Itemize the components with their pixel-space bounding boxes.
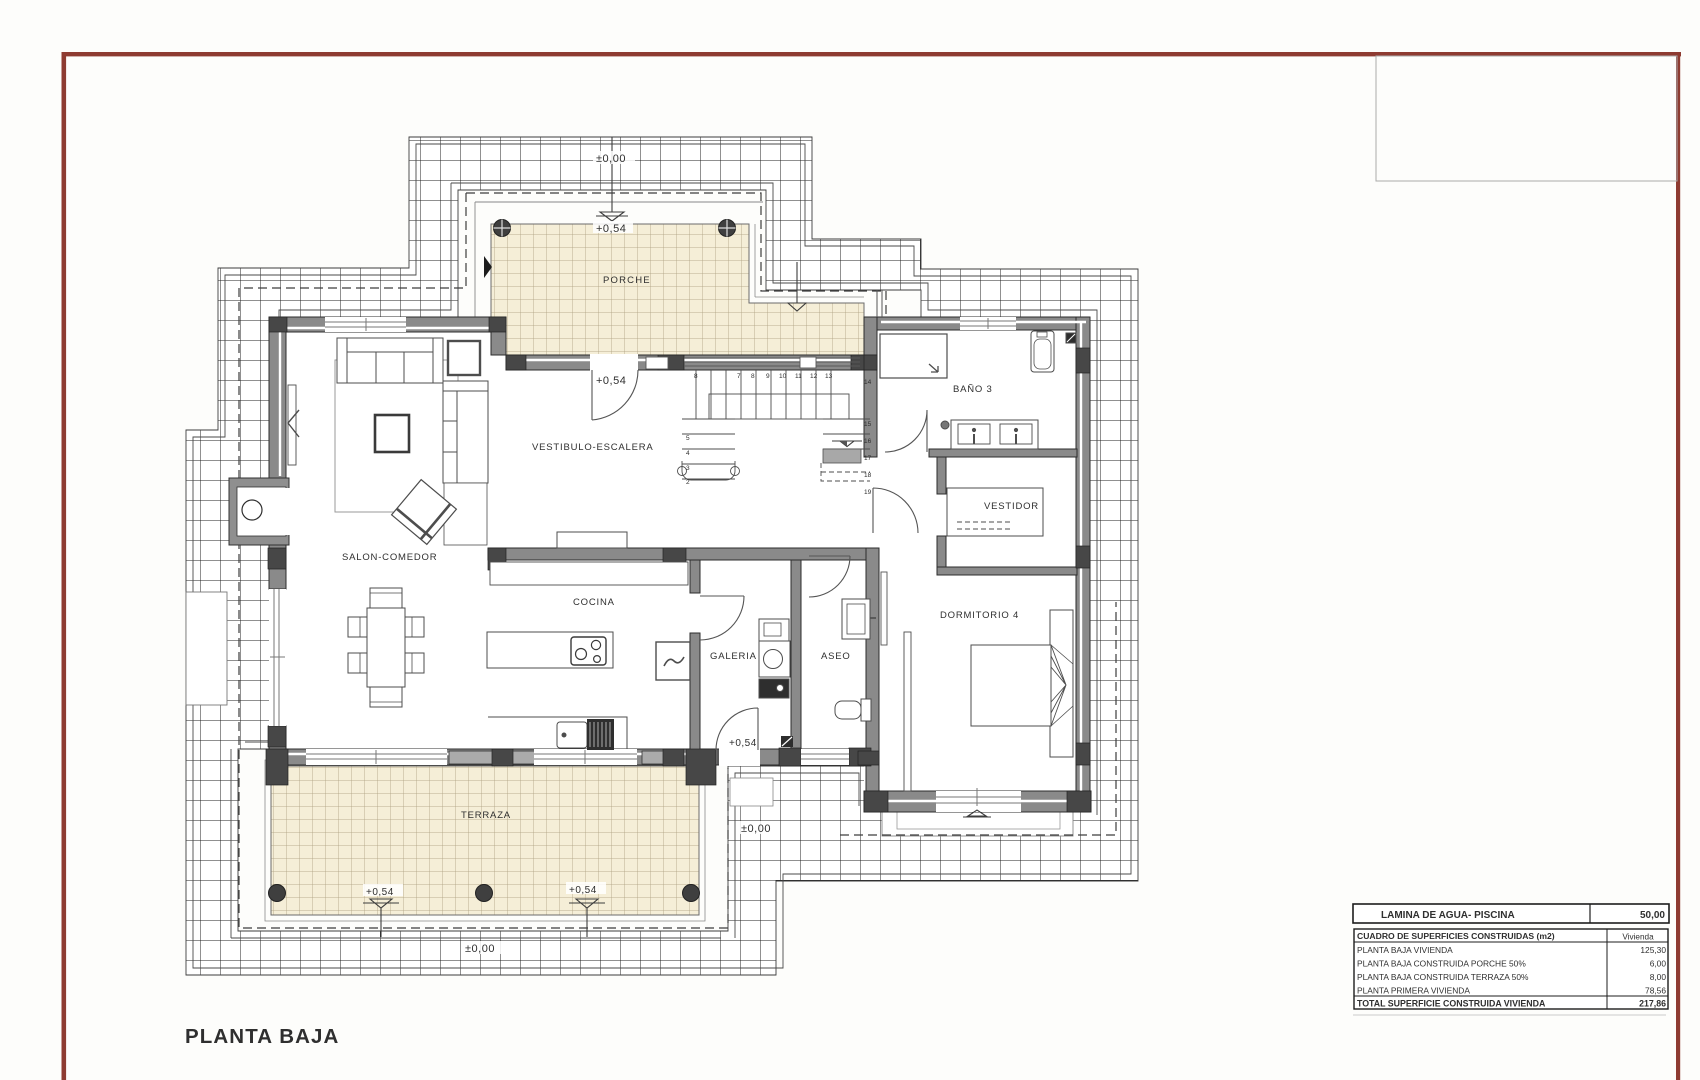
svg-text:78,56: 78,56 — [1645, 986, 1666, 996]
svg-text:19: 19 — [864, 489, 872, 496]
svg-text:6,00: 6,00 — [1650, 959, 1667, 969]
svg-text:+0,54: +0,54 — [569, 885, 597, 896]
svg-text:9: 9 — [766, 373, 770, 380]
svg-text:+0,54: +0,54 — [729, 738, 757, 749]
svg-text:LAMINA DE AGUA- PISCINA: LAMINA DE AGUA- PISCINA — [1381, 910, 1515, 921]
svg-text:13: 13 — [825, 373, 833, 380]
svg-text:7: 7 — [737, 373, 741, 380]
svg-text:DORMITORIO 4: DORMITORIO 4 — [940, 610, 1019, 621]
svg-text:Vivienda: Vivienda — [1622, 933, 1654, 942]
svg-text:15: 15 — [864, 421, 872, 428]
svg-text:VESTIDOR: VESTIDOR — [984, 501, 1039, 512]
svg-text:PLANTA PRIMERA VIVIENDA: PLANTA PRIMERA VIVIENDA — [1357, 986, 1470, 996]
svg-text:PLANTA BAJA CONSTRUIDA TERRAZA: PLANTA BAJA CONSTRUIDA TERRAZA 50% — [1357, 972, 1529, 982]
svg-text:4: 4 — [686, 450, 690, 457]
svg-text:TOTAL SUPERFICIE CONSTRUIDA VI: TOTAL SUPERFICIE CONSTRUIDA VIVIENDA — [1357, 999, 1546, 1009]
svg-text:±0,00: ±0,00 — [596, 153, 626, 165]
svg-text:2: 2 — [686, 479, 690, 486]
svg-text:17: 17 — [864, 455, 872, 462]
svg-text:ASEO: ASEO — [821, 651, 851, 662]
svg-text:CUADRO DE SUPERFICIES CONSTRUI: CUADRO DE SUPERFICIES CONSTRUIDAS (m2) — [1357, 931, 1555, 941]
svg-text:16: 16 — [864, 438, 872, 445]
svg-text:8: 8 — [694, 373, 698, 380]
svg-text:125,30: 125,30 — [1640, 945, 1666, 955]
svg-text:3: 3 — [686, 465, 690, 472]
svg-text:217,86: 217,86 — [1639, 999, 1666, 1009]
svg-text:10: 10 — [779, 373, 787, 380]
svg-text:BAÑO 3: BAÑO 3 — [953, 384, 993, 395]
svg-text:+0,54: +0,54 — [596, 375, 626, 387]
svg-text:±0,00: ±0,00 — [465, 943, 495, 955]
svg-text:VESTIBULO-ESCALERA: VESTIBULO-ESCALERA — [532, 442, 654, 453]
svg-text:18: 18 — [864, 472, 872, 479]
svg-text:GALERIA: GALERIA — [710, 651, 757, 662]
svg-text:+0,54: +0,54 — [366, 887, 394, 898]
svg-text:SALON-COMEDOR: SALON-COMEDOR — [342, 552, 437, 563]
svg-text:50,00: 50,00 — [1640, 910, 1665, 921]
svg-text:COCINA: COCINA — [573, 597, 615, 608]
svg-text:+0,54: +0,54 — [596, 223, 626, 235]
svg-text:14: 14 — [864, 379, 872, 386]
svg-text:11: 11 — [795, 373, 802, 380]
svg-text:PLANTA BAJA: PLANTA BAJA — [185, 1025, 339, 1048]
svg-text:TERRAZA: TERRAZA — [461, 810, 511, 821]
svg-text:PLANTA BAJA VIVIENDA: PLANTA BAJA VIVIENDA — [1357, 945, 1453, 955]
svg-text:5: 5 — [686, 435, 690, 442]
svg-text:±0,00: ±0,00 — [741, 823, 771, 835]
svg-text:PLANTA BAJA CONSTRUIDA PORCHE: PLANTA BAJA CONSTRUIDA PORCHE 50% — [1357, 959, 1526, 969]
svg-text:12: 12 — [810, 373, 818, 380]
svg-text:8: 8 — [751, 373, 755, 380]
svg-text:PORCHE: PORCHE — [603, 275, 651, 286]
svg-text:8,00: 8,00 — [1650, 972, 1667, 982]
